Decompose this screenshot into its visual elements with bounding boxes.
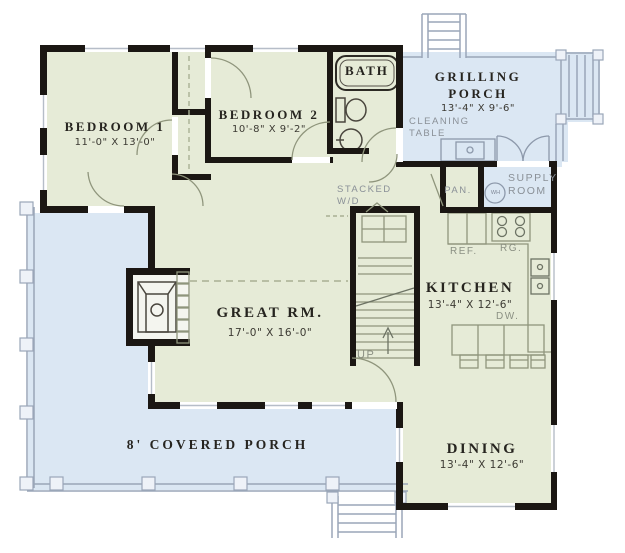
cleaning-table-label-1: CLEANING xyxy=(409,116,470,127)
side-deck-floor xyxy=(562,52,600,122)
dining-label: DINING xyxy=(407,441,557,458)
kitchen-label: KITCHEN xyxy=(395,280,545,297)
cleaning-table-label-2: TABLE xyxy=(409,128,446,139)
grilling-porch-label-1: GRILLING xyxy=(408,69,548,85)
stairs-up-label: UP xyxy=(357,349,375,361)
grilling-porch-label-2: PORCH xyxy=(408,86,548,102)
bedroom1-dims: 11'-0" X 13'-0" xyxy=(40,137,190,148)
kitchen-dims: 13'-4" X 12'-6" xyxy=(395,299,545,311)
dishwasher-label: DW. xyxy=(496,311,519,322)
bath-label: BATH xyxy=(338,63,396,79)
bedroom2-dims: 10'-8" X 9'-2" xyxy=(194,124,344,135)
stacked-wd-label-1: STACKED xyxy=(337,184,392,195)
fireplace xyxy=(126,268,190,346)
bedroom2-label: BEDROOM 2 xyxy=(194,107,344,123)
grilling-porch-dims: 13'-4" X 9'-6" xyxy=(408,103,548,114)
supply-room-label-2: ROOM xyxy=(508,185,547,197)
pantry-label: PAN. xyxy=(437,185,479,196)
dining-dims: 13'-4" X 12'-6" xyxy=(407,459,557,471)
floor-plan: BEDROOM 1 11'-0" X 13'-0" BEDROOM 2 10'-… xyxy=(0,0,625,553)
side-steps-floor xyxy=(556,122,568,162)
great-room-label: GREAT RM. xyxy=(185,305,355,322)
grilling-porch-steps xyxy=(403,14,561,58)
bedroom1-label: BEDROOM 1 xyxy=(40,119,190,135)
water-heater-label: WH xyxy=(487,190,504,196)
supply-room-label-1: SUPPLY xyxy=(508,172,558,184)
porch-steps xyxy=(327,492,406,538)
covered-porch-label: 8' COVERED PORCH xyxy=(90,437,345,453)
stacked-wd-label-2: W/D xyxy=(337,196,360,207)
refrigerator-label: REF. xyxy=(450,246,478,257)
great-room-dims: 17'-0" X 16'-0" xyxy=(185,327,355,339)
range-label: RG. xyxy=(500,243,522,254)
